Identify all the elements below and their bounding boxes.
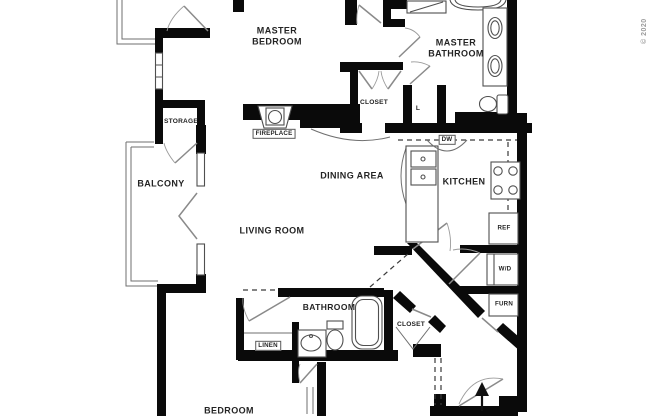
- label-master-bedroom: MASTER BEDROOM: [252, 25, 302, 46]
- walls: [155, 0, 532, 416]
- shower-icon: [407, 1, 446, 13]
- copyright-watermark: © 2020: [641, 18, 648, 44]
- label-refrigerator: REF: [497, 224, 512, 231]
- double-vanity-sinks: [483, 8, 507, 86]
- label-living-room: LIVING ROOM: [240, 226, 305, 237]
- sink-icon: [298, 330, 326, 357]
- stove-icon: [491, 162, 520, 199]
- balcony-door-panel-top: [197, 153, 205, 186]
- windows: [155, 53, 205, 275]
- label-storage: STORAGE: [164, 118, 198, 126]
- label-master-bathroom: MASTER BATHROOM: [428, 37, 484, 58]
- balcony-outlines: [117, 0, 158, 286]
- label-closet-bedroom: CLOSET: [397, 321, 425, 329]
- floor-plan-drawing: [0, 0, 652, 416]
- label-washer-dryer: W/D: [499, 265, 512, 272]
- label-kitchen: KITCHEN: [443, 177, 486, 188]
- label-dishwasher: DW: [439, 135, 456, 145]
- balcony-door-panel-bottom: [197, 244, 205, 275]
- label-bathroom: BATHROOM: [303, 302, 356, 312]
- toilet-icon: [327, 321, 343, 350]
- label-dining-area: DINING AREA: [320, 171, 384, 182]
- balcony-french-doors-open: [179, 193, 197, 239]
- label-closet-master: CLOSET: [360, 99, 388, 107]
- label-bedroom: BEDROOM: [204, 406, 254, 416]
- label-linen: LINEN: [255, 341, 281, 351]
- bathtub-icon: [352, 296, 382, 349]
- label-linen-closet-small: L: [416, 105, 420, 113]
- floor-plan: MASTER BEDROOM MASTER BATHROOM STORAGE C…: [0, 0, 652, 416]
- fireplace-fixture: [258, 106, 292, 128]
- window-master-bedroom: [156, 53, 163, 89]
- toilet-master-icon: [480, 95, 509, 114]
- label-fireplace: FIREPLACE: [253, 129, 296, 139]
- label-balcony: BALCONY: [137, 179, 184, 190]
- label-furnace: FURN: [495, 300, 513, 307]
